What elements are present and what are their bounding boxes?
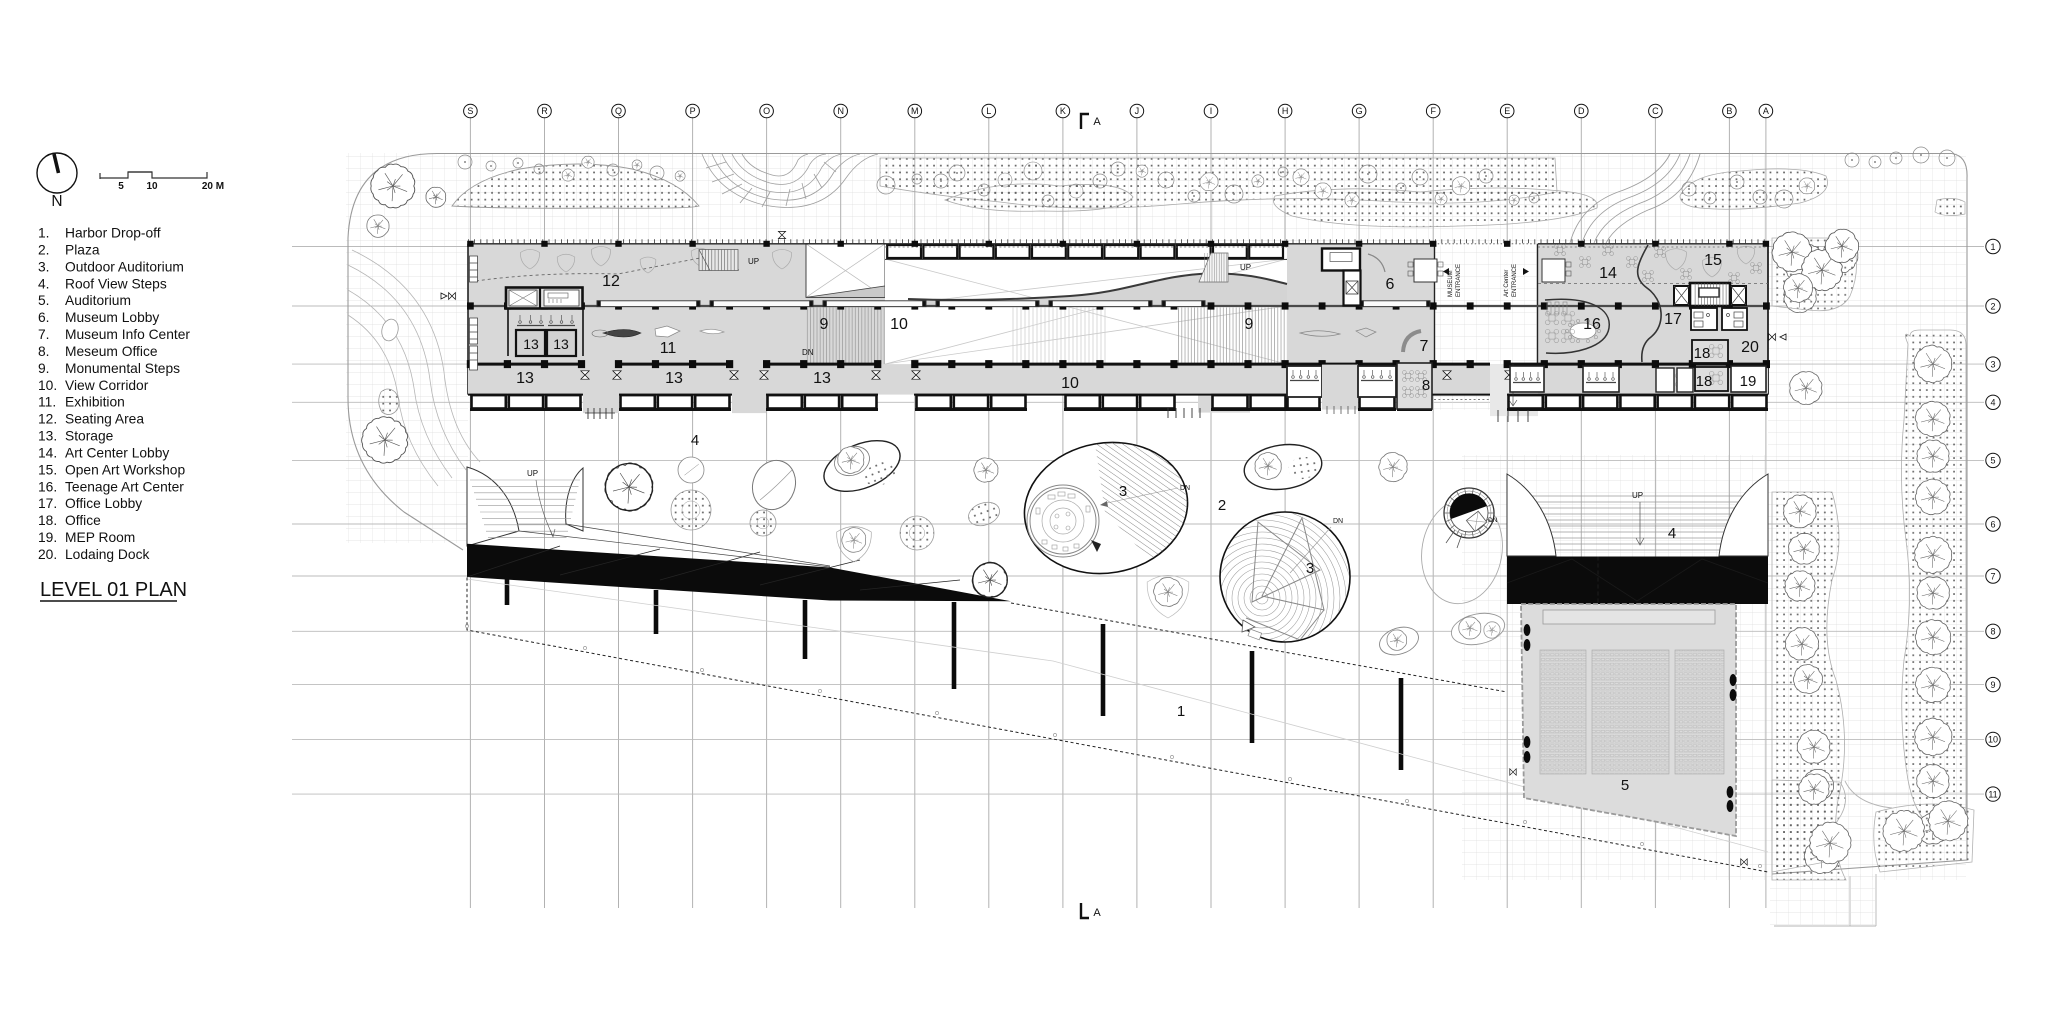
svg-text:Teenage Art Center: Teenage Art Center: [65, 479, 184, 494]
svg-text:G: G: [1356, 106, 1363, 116]
svg-text:Plaza: Plaza: [65, 242, 100, 257]
svg-text:12: 12: [602, 273, 620, 290]
svg-text:9.: 9.: [38, 361, 50, 376]
svg-text:10: 10: [146, 181, 158, 192]
svg-text:5: 5: [1990, 456, 1995, 466]
svg-text:17.: 17.: [38, 496, 57, 511]
svg-text:N: N: [837, 106, 844, 116]
svg-text:15: 15: [1704, 252, 1722, 269]
svg-text:18.: 18.: [38, 513, 57, 528]
svg-text:18: 18: [1696, 373, 1713, 390]
svg-text:2: 2: [1218, 497, 1226, 514]
svg-text:O: O: [763, 106, 770, 116]
svg-text:D: D: [1578, 106, 1585, 116]
svg-text:13: 13: [813, 370, 831, 387]
svg-text:11: 11: [1988, 789, 1997, 799]
svg-text:Exhibition: Exhibition: [65, 395, 125, 410]
svg-text:N: N: [51, 193, 62, 210]
svg-text:3: 3: [1990, 359, 1995, 369]
svg-text:K: K: [1060, 106, 1066, 116]
svg-text:DN: DN: [802, 348, 814, 357]
svg-text:I: I: [1210, 106, 1213, 116]
svg-text:Art Center Lobby: Art Center Lobby: [65, 446, 169, 461]
svg-text:19: 19: [1740, 373, 1757, 390]
svg-text:F: F: [1430, 106, 1436, 116]
svg-text:13: 13: [553, 336, 569, 352]
svg-text:14.: 14.: [38, 446, 57, 461]
svg-text:12.: 12.: [38, 412, 57, 427]
svg-text:5: 5: [118, 181, 124, 192]
svg-text:4: 4: [691, 432, 699, 449]
svg-text:DN: DN: [1180, 485, 1190, 492]
svg-text:11: 11: [660, 340, 677, 357]
svg-text:B: B: [1726, 106, 1732, 116]
svg-text:16.: 16.: [38, 479, 57, 494]
svg-text:S: S: [467, 106, 473, 116]
svg-text:10: 10: [1061, 375, 1079, 392]
svg-text:L: L: [986, 106, 991, 116]
svg-text:18: 18: [1694, 345, 1711, 362]
svg-text:Museum Info Center: Museum Info Center: [65, 327, 190, 342]
svg-text:LEVEL 01 PLAN: LEVEL 01 PLAN: [40, 579, 187, 601]
svg-text:13.: 13.: [38, 429, 57, 444]
svg-text:6: 6: [1990, 519, 1995, 529]
svg-text:8.: 8.: [38, 344, 50, 359]
svg-text:20.: 20.: [38, 547, 57, 562]
svg-text:Office: Office: [65, 513, 101, 528]
svg-text:Open Art Workshop: Open Art Workshop: [65, 462, 185, 477]
svg-text:1: 1: [1990, 242, 1995, 252]
svg-text:8: 8: [1422, 377, 1430, 394]
svg-text:16: 16: [1583, 316, 1601, 333]
svg-text:4: 4: [1668, 525, 1676, 542]
svg-text:Monumental Steps: Monumental Steps: [65, 361, 180, 376]
svg-text:DN: DN: [1488, 517, 1498, 524]
svg-text:Outdoor Auditorium: Outdoor Auditorium: [65, 259, 184, 274]
svg-text:Art Center: Art Center: [1504, 270, 1510, 297]
svg-text:8: 8: [1990, 627, 1995, 637]
svg-text:5: 5: [1621, 777, 1629, 794]
svg-text:J: J: [1135, 106, 1140, 116]
svg-text:Roof View Steps: Roof View Steps: [65, 276, 167, 291]
svg-text:3: 3: [1119, 483, 1127, 500]
svg-text:11.: 11.: [38, 395, 56, 410]
svg-text:7: 7: [1420, 338, 1429, 355]
svg-text:Museum Lobby: Museum Lobby: [65, 310, 159, 325]
svg-text:9: 9: [1245, 316, 1254, 333]
svg-text:20 M: 20 M: [202, 181, 224, 192]
svg-text:ENTRANCE: ENTRANCE: [1512, 264, 1518, 297]
svg-text:13: 13: [523, 336, 539, 352]
svg-text:Auditorium: Auditorium: [65, 293, 131, 308]
svg-text:10.: 10.: [38, 378, 57, 393]
svg-text:C: C: [1652, 106, 1659, 116]
svg-text:2.: 2.: [38, 242, 50, 257]
svg-text:5.: 5.: [38, 293, 50, 308]
svg-text:14: 14: [1599, 265, 1617, 282]
svg-text:UP: UP: [1632, 491, 1643, 500]
svg-text:Office Lobby: Office Lobby: [65, 496, 142, 511]
svg-text:7: 7: [1990, 571, 1995, 581]
svg-text:Harbor Drop-off: Harbor Drop-off: [65, 226, 161, 241]
svg-text:DN: DN: [1333, 518, 1343, 525]
svg-text:Q: Q: [615, 106, 622, 116]
svg-text:7.: 7.: [38, 327, 50, 342]
svg-text:17: 17: [1664, 311, 1682, 328]
svg-text:Storage: Storage: [65, 429, 114, 444]
svg-text:2: 2: [1990, 301, 1995, 311]
svg-text:UP: UP: [527, 469, 538, 478]
svg-text:3.: 3.: [38, 259, 50, 274]
svg-text:4: 4: [1990, 398, 1995, 408]
svg-text:6.: 6.: [38, 310, 50, 325]
svg-text:P: P: [690, 106, 696, 116]
svg-text:13: 13: [665, 370, 683, 387]
svg-text:9: 9: [820, 316, 829, 333]
svg-text:ENTRANCE: ENTRANCE: [1456, 264, 1462, 297]
svg-text:3: 3: [1306, 560, 1314, 577]
svg-text:13: 13: [516, 370, 534, 387]
svg-text:A: A: [1093, 907, 1101, 919]
svg-text:MEP Room: MEP Room: [65, 530, 135, 545]
svg-text:UP: UP: [748, 257, 759, 266]
svg-text:6: 6: [1386, 276, 1395, 293]
svg-text:A: A: [1763, 106, 1769, 116]
svg-text:Lodaing Dock: Lodaing Dock: [65, 547, 149, 562]
svg-text:E: E: [1504, 106, 1510, 116]
svg-text:20: 20: [1741, 339, 1759, 356]
svg-text:UP: UP: [1240, 263, 1251, 272]
svg-text:9: 9: [1990, 680, 1995, 690]
svg-text:View Corridor: View Corridor: [65, 378, 149, 393]
svg-text:M: M: [911, 106, 919, 116]
svg-text:10: 10: [1988, 735, 1998, 745]
svg-text:15.: 15.: [38, 462, 57, 477]
svg-text:1.: 1.: [38, 226, 50, 241]
svg-text:R: R: [541, 106, 548, 116]
svg-text:4.: 4.: [38, 276, 50, 291]
svg-text:H: H: [1282, 106, 1289, 116]
svg-text:19.: 19.: [38, 530, 57, 545]
svg-text:Meseum Office: Meseum Office: [65, 344, 158, 359]
svg-text:10: 10: [890, 316, 908, 333]
svg-text:A: A: [1093, 116, 1101, 128]
svg-text:Seating Area: Seating Area: [65, 412, 144, 427]
svg-text:1: 1: [1177, 703, 1185, 720]
